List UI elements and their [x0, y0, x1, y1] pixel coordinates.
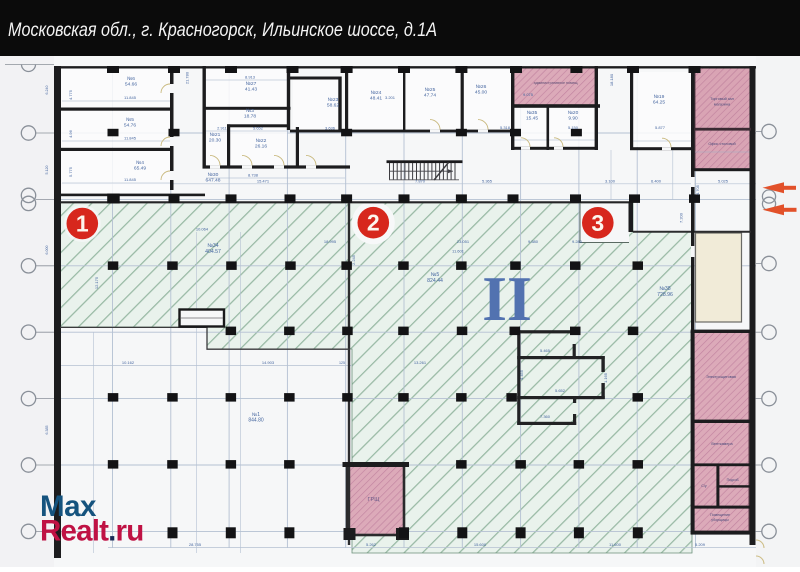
svg-text:41.43: 41.43: [245, 87, 258, 93]
svg-text:№25: №25: [425, 87, 436, 93]
svg-text:1.165: 1.165: [603, 372, 608, 383]
svg-text:№21: №21: [210, 132, 221, 138]
svg-text:21.780: 21.780: [185, 71, 190, 84]
svg-text:6.000: 6.000: [45, 246, 49, 255]
svg-text:№23: №23: [328, 97, 339, 103]
svg-text:5.209: 5.209: [695, 542, 706, 547]
svg-text:5.365: 5.365: [482, 179, 493, 184]
svg-text:18.995: 18.995: [324, 239, 337, 244]
svg-text:3.100: 3.100: [605, 179, 616, 184]
svg-text:7.200: 7.200: [679, 212, 684, 223]
svg-text:3.201: 3.201: [385, 95, 396, 100]
svg-text:47.74: 47.74: [424, 93, 437, 99]
svg-text:5.877: 5.877: [655, 125, 666, 130]
svg-text:64.25: 64.25: [653, 100, 666, 106]
svg-text:54.76: 54.76: [124, 123, 137, 129]
svg-text:5.775: 5.775: [68, 166, 73, 177]
svg-text:Офис столовой: Офис столовой: [708, 142, 735, 146]
svg-text:647.48: 647.48: [206, 178, 221, 184]
svg-text:№27: №27: [246, 81, 257, 87]
svg-text:5.652: 5.652: [253, 126, 264, 131]
svg-text:728.96: 728.96: [657, 292, 673, 298]
svg-text:10.162: 10.162: [122, 360, 135, 365]
svg-text:Венткамера: Венткамера: [711, 442, 733, 446]
svg-text:7.870: 7.870: [415, 179, 426, 184]
svg-text:№4: №4: [136, 160, 144, 166]
svg-text:5.318: 5.318: [500, 125, 511, 130]
svg-text:15.600: 15.600: [474, 542, 487, 547]
svg-text:№24: №24: [371, 90, 382, 96]
svg-text:5.465: 5.465: [540, 348, 551, 353]
svg-text:125: 125: [339, 361, 345, 365]
svg-text:6.385: 6.385: [45, 426, 49, 435]
svg-text:4.775: 4.775: [68, 89, 73, 100]
svg-text:№5: №5: [126, 117, 134, 123]
svg-text:13.261: 13.261: [414, 360, 427, 365]
svg-text:10.064: 10.064: [196, 227, 209, 232]
svg-text:11.845: 11.845: [124, 136, 137, 141]
svg-text:3.636: 3.636: [325, 126, 336, 131]
svg-text:58.62: 58.62: [327, 103, 340, 109]
svg-text:14.903: 14.903: [262, 360, 275, 365]
svg-text:9.075: 9.075: [523, 92, 534, 97]
svg-text:7.360: 7.360: [540, 414, 551, 419]
svg-text:2.245: 2.245: [351, 254, 356, 265]
svg-text:12.175: 12.175: [94, 276, 99, 289]
svg-text:С/у: С/у: [701, 484, 707, 488]
svg-text:844.80: 844.80: [248, 418, 264, 424]
svg-text:ГРЩ: ГРЩ: [367, 497, 380, 503]
svg-text:6.240: 6.240: [45, 86, 49, 95]
svg-text:Помещение: Помещение: [710, 513, 730, 517]
svg-text:9.90: 9.90: [568, 115, 578, 121]
svg-text:15.45: 15.45: [526, 115, 538, 121]
svg-text:№3: №3: [246, 108, 254, 114]
svg-text:Подсоб.: Подсоб.: [727, 478, 740, 482]
svg-text:5.150: 5.150: [568, 125, 579, 130]
svg-text:2: 2: [367, 210, 380, 236]
svg-text:4.96: 4.96: [68, 129, 73, 138]
svg-text:магазина: магазина: [714, 103, 731, 107]
svg-text:54.66: 54.66: [125, 82, 138, 88]
svg-text:8.738: 8.738: [248, 173, 259, 178]
svg-text:уборщицы: уборщицы: [711, 518, 729, 522]
svg-text:18.78: 18.78: [244, 114, 257, 120]
svg-text:11.601: 11.601: [452, 249, 465, 254]
svg-text:3: 3: [591, 210, 604, 236]
svg-text:№30: №30: [208, 172, 219, 178]
svg-text:28.755: 28.755: [189, 542, 202, 547]
svg-text:45.00: 45.00: [475, 90, 488, 96]
svg-text:5.262: 5.262: [366, 542, 377, 547]
svg-text:№22: №22: [256, 138, 267, 144]
svg-text:II: II: [482, 263, 532, 334]
svg-text:65.49: 65.49: [134, 166, 147, 172]
svg-text:административное помещ.: административное помещ.: [534, 81, 579, 85]
svg-text:404.57: 404.57: [205, 249, 221, 255]
svg-text:Московская обл., г. Красногорс: Московская обл., г. Красногорск, Ильинск…: [8, 20, 437, 41]
svg-text:6.400: 6.400: [651, 179, 662, 184]
svg-text:8.913: 8.913: [245, 75, 256, 80]
svg-text:824.44: 824.44: [427, 278, 443, 284]
svg-text:5.025: 5.025: [718, 179, 729, 184]
svg-text:№26: №26: [476, 84, 487, 90]
svg-text:№20: №20: [568, 110, 579, 116]
svg-text:48.41: 48.41: [370, 96, 383, 102]
svg-text:2.911: 2.911: [217, 126, 227, 131]
svg-text:11.845: 11.845: [124, 177, 137, 182]
svg-text:№6: №6: [127, 76, 135, 82]
svg-text:4.455: 4.455: [519, 369, 524, 380]
svg-text:5.120: 5.120: [45, 166, 49, 175]
svg-text:1: 1: [76, 211, 89, 237]
svg-text:18.180: 18.180: [609, 73, 614, 86]
svg-text:11.600: 11.600: [609, 542, 622, 547]
svg-text:20.30: 20.30: [209, 138, 222, 144]
svg-text:9.280: 9.280: [572, 239, 583, 244]
svg-text:№35: №35: [527, 110, 538, 116]
svg-text:Электрощитовая: Электрощитовая: [706, 375, 736, 379]
svg-text:4.705: 4.705: [695, 184, 700, 195]
svg-text:№19: №19: [654, 94, 665, 100]
svg-text:26.16: 26.16: [255, 144, 268, 150]
svg-text:Realt.ru: Realt.ru: [40, 515, 143, 548]
svg-text:9.580: 9.580: [528, 239, 539, 244]
svg-text:Торговый зал: Торговый зал: [710, 97, 734, 101]
svg-text:23.051: 23.051: [457, 239, 470, 244]
svg-text:5.652: 5.652: [555, 388, 566, 393]
svg-text:11.845: 11.845: [124, 95, 137, 100]
svg-text:15.471: 15.471: [257, 179, 270, 184]
